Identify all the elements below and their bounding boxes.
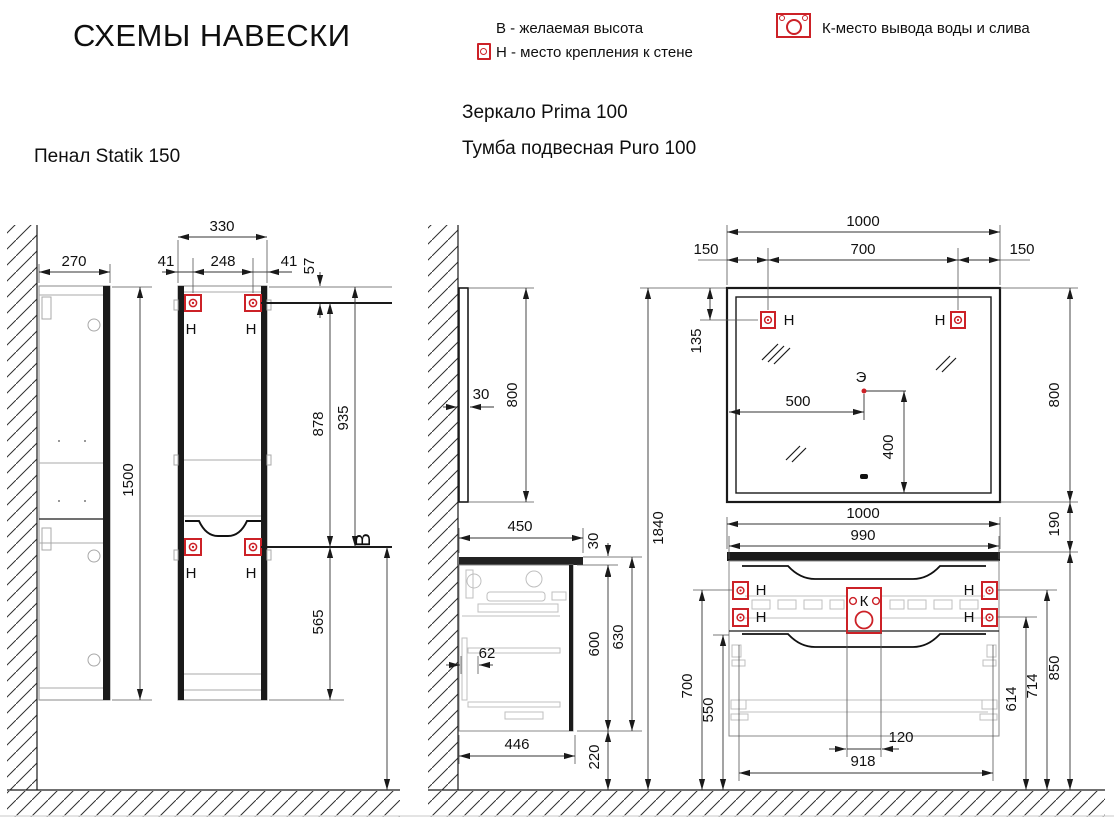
dim-electric-from-left: 500 [785, 393, 810, 410]
marker-label-k: К [860, 593, 869, 610]
dim-mirror-edge-left: 150 [693, 241, 718, 258]
dim-vanity-depth: 450 [507, 518, 532, 535]
dim-body-depth: 446 [504, 736, 529, 753]
dim-front-width: 330 [209, 218, 234, 235]
pencil-front-view [174, 286, 271, 700]
dim-top-to-holes: 57 [301, 258, 318, 275]
marker-label-h: Н [246, 321, 257, 338]
dim-under-clearance: 220 [586, 744, 603, 769]
dim-lower-holes-right: 614 [1003, 686, 1020, 711]
dim-mirror-height-side: 800 [504, 382, 521, 407]
marker-label-h: Н [186, 565, 197, 582]
vanity-side-view [459, 557, 583, 731]
vanity-front-view: Н Н Н Н К [727, 552, 1000, 736]
dim-mirror-height-front: 800 [1046, 382, 1063, 407]
electric-label: Э [856, 369, 867, 386]
marker-label-h: Н [246, 565, 257, 582]
dim-counter-thickness: 30 [585, 533, 602, 550]
dim-mirror-edge-right: 150 [1009, 241, 1034, 258]
marker-label-h: Н [935, 312, 946, 329]
touch-sensor-dot [860, 474, 868, 479]
dim-body-height: 600 [586, 631, 603, 656]
dim-edge-to-hole-left: 41 [158, 253, 175, 270]
dim-inner-offset: 62 [479, 645, 496, 662]
floor-right [428, 790, 1105, 817]
dim-mirror-width: 1000 [846, 213, 879, 230]
dim-mirror-gap: 190 [1046, 511, 1063, 536]
dim-counter-top-height: 850 [1046, 655, 1063, 680]
dim-holes-span-vanity: 918 [850, 753, 875, 770]
dim-lower-holes-to-bottom: 565 [310, 609, 327, 634]
dim-body-width: 990 [850, 527, 875, 544]
marker-label-h: Н [186, 321, 197, 338]
mounting-scheme-page: СХЕМЫ НАВЕСКИ В - желаемая высота Н - ме… [0, 0, 1114, 822]
mirror-front-view: Н Н Э [727, 288, 1000, 502]
dim-upper-holes-right: 714 [1024, 673, 1041, 698]
dim-drain-zone-width: 120 [888, 729, 913, 746]
dim-height: 1500 [120, 463, 137, 496]
technical-drawing: Н Н Н Н 270 1500 330 41 [0, 0, 1114, 822]
dim-overall-height: 1840 [650, 511, 667, 544]
marker-label-h: Н [756, 609, 767, 626]
dim-side-depth: 270 [61, 253, 86, 270]
dim-top-to-lower-holes: 935 [335, 405, 352, 430]
dim-holes-span: 248 [210, 253, 235, 270]
dim-upper-holes-left: 700 [679, 673, 696, 698]
marker-label-h: Н [964, 609, 975, 626]
electric-point [862, 389, 867, 394]
dim-desired-height-b: В [352, 533, 375, 547]
dim-lower-edge-left: 550 [700, 697, 717, 722]
pencil-side-view [39, 286, 110, 700]
dim-mirror-top-to-holes: 135 [688, 328, 705, 353]
wall-right [428, 225, 458, 790]
marker-label-h: Н [756, 582, 767, 599]
marker-label-h: Н [784, 312, 795, 329]
dim-mirror-holes-span: 700 [850, 241, 875, 258]
dim-total-height: 630 [610, 624, 627, 649]
dim-edge-to-hole-right: 41 [281, 253, 298, 270]
dim-electric-from-bottom: 400 [880, 434, 897, 459]
dim-between-hole-rows: 878 [310, 411, 327, 436]
floor-left [7, 790, 400, 817]
dim-counter-width: 1000 [846, 505, 879, 522]
dim-mirror-depth: 30 [473, 386, 490, 403]
marker-label-h: Н [964, 582, 975, 599]
wall-left [7, 225, 37, 790]
